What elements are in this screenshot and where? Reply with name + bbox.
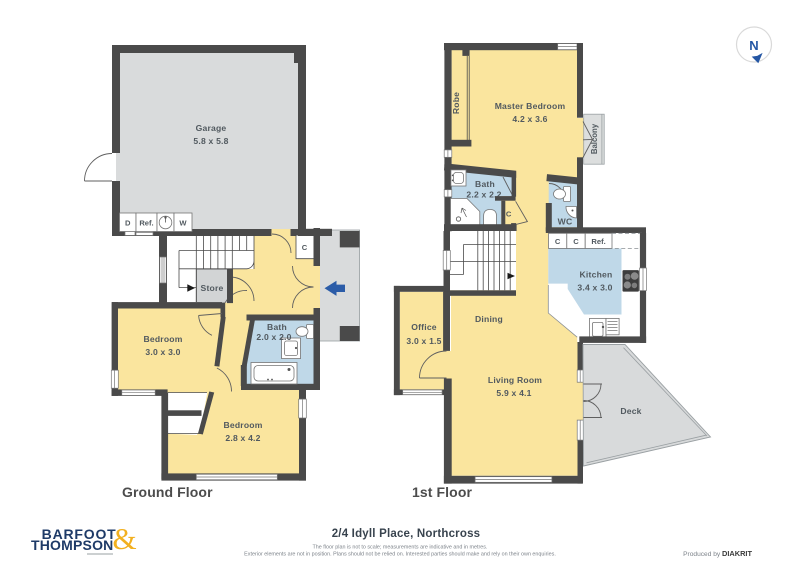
svg-text:Office: Office (411, 322, 437, 332)
svg-text:1st Floor: 1st Floor (412, 484, 472, 500)
svg-text:WC: WC (558, 217, 573, 227)
svg-text:Bath: Bath (267, 322, 287, 332)
svg-text:3.0 x 1.5: 3.0 x 1.5 (406, 336, 441, 346)
svg-text:Bedroom: Bedroom (223, 420, 262, 430)
svg-text:C: C (302, 243, 308, 252)
svg-text:3.0 x 3.0: 3.0 x 3.0 (145, 347, 180, 357)
svg-text:Dining: Dining (475, 314, 503, 324)
svg-text:Robe: Robe (451, 92, 461, 114)
svg-text:THOMPSON: THOMPSON (31, 537, 114, 553)
svg-text:C: C (506, 210, 512, 219)
svg-text:C: C (573, 237, 579, 246)
svg-text:Garage: Garage (196, 123, 227, 133)
svg-text:Produced by DIAKRIT: Produced by DIAKRIT (683, 549, 752, 558)
svg-text:&: & (113, 521, 137, 556)
svg-text:D: D (125, 219, 131, 228)
svg-text:Master Bedroom: Master Bedroom (495, 101, 566, 111)
svg-text:Balcony: Balcony (590, 123, 599, 154)
svg-text:Deck: Deck (620, 406, 641, 416)
svg-text:Ref.: Ref. (139, 219, 153, 228)
svg-text:3.4 x 3.0: 3.4 x 3.0 (577, 283, 612, 293)
svg-text:5.9 x 4.1: 5.9 x 4.1 (496, 388, 531, 398)
svg-text:5.8 x 5.8: 5.8 x 5.8 (193, 136, 228, 146)
svg-text:Bath: Bath (475, 179, 495, 189)
svg-text:2.0 x 2.0: 2.0 x 2.0 (256, 332, 291, 342)
svg-text:C: C (555, 237, 561, 246)
svg-text:Living Room: Living Room (488, 375, 542, 385)
svg-text:Ref.: Ref. (591, 237, 605, 246)
svg-text:2.8 x 4.2: 2.8 x 4.2 (225, 433, 260, 443)
svg-text:2/4 Idyll Place, Northcross: 2/4 Idyll Place, Northcross (332, 528, 481, 540)
svg-text:Exterior elements are not in p: Exterior elements are not in position. P… (244, 552, 556, 558)
svg-text:The floor plan is not to scale: The floor plan is not to scale; measurem… (313, 545, 488, 551)
svg-text:4.2 x 3.6: 4.2 x 3.6 (512, 114, 547, 124)
svg-text:Kitchen: Kitchen (580, 270, 613, 280)
svg-text:Store: Store (201, 283, 224, 293)
svg-text:Ground Floor: Ground Floor (122, 484, 213, 500)
svg-text:W: W (179, 219, 187, 228)
svg-text:Bedroom: Bedroom (143, 334, 182, 344)
svg-text:N: N (749, 38, 758, 53)
